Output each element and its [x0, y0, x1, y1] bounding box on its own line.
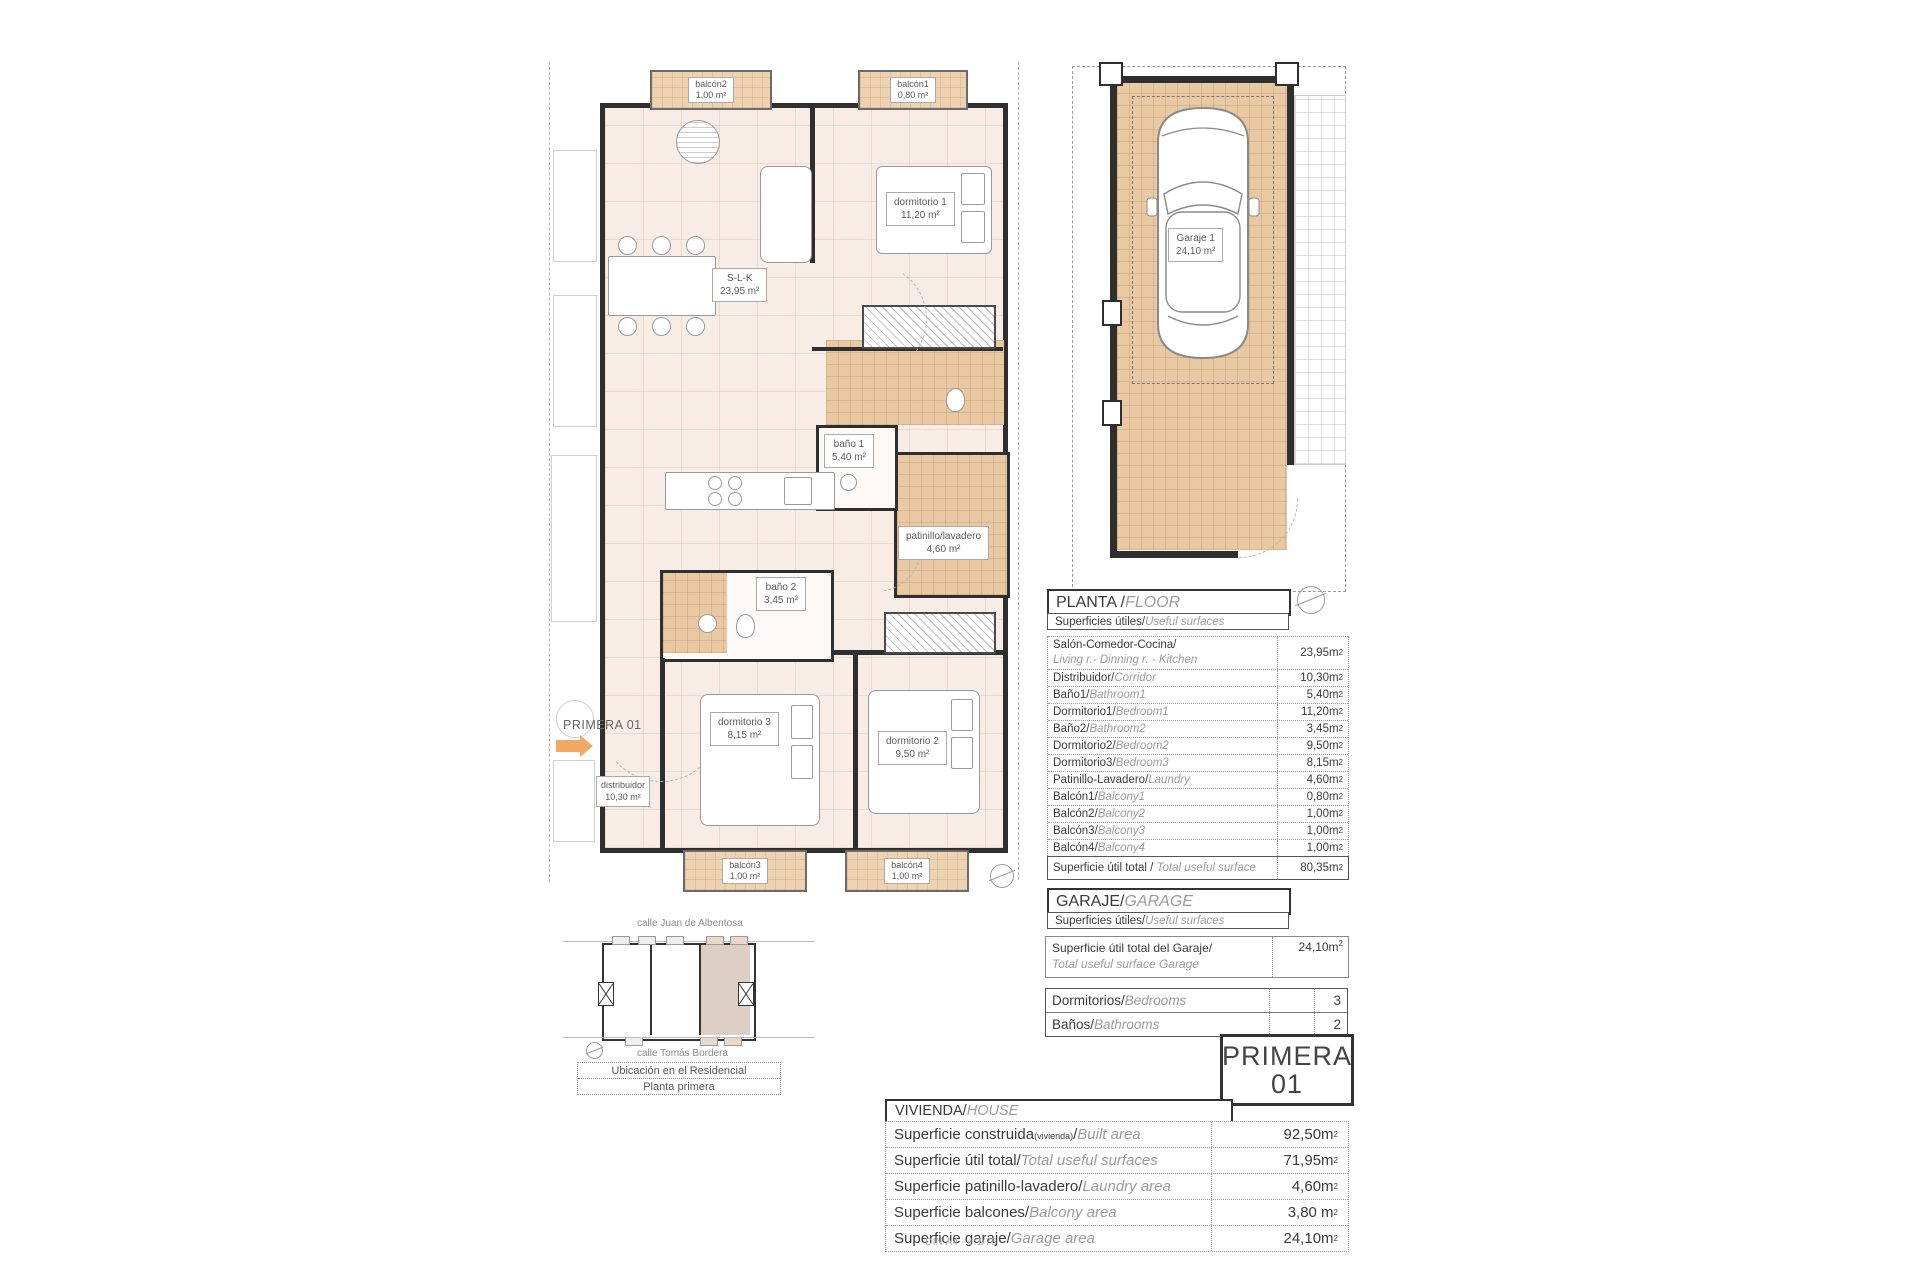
- row-value: 71,95m2: [1211, 1148, 1348, 1173]
- unit-divider: [699, 945, 701, 1035]
- vivienda-row: Superficie construida(vivienda)/Built ar…: [886, 1122, 1348, 1147]
- planta-header: PLANTA / FLOOR: [1047, 589, 1291, 616]
- neighbour-fixture: [553, 150, 597, 262]
- row-label: Superficie útil total / Total useful sur…: [1048, 861, 1277, 875]
- unit-id-line2: 01: [1271, 1070, 1303, 1098]
- balcony-tick: [730, 936, 748, 945]
- pillow: [791, 745, 813, 779]
- room-balcon4: balcón41,00 m²: [845, 850, 969, 892]
- adjacent-structure-grid: [1294, 95, 1346, 465]
- chair: [618, 317, 637, 336]
- site-caption-box: Ubicación en el Residencial Planta prime…: [577, 1062, 781, 1095]
- floorplan-sheet: balcón21,00 m² balcón10,80 m² balcón31,0…: [0, 0, 1920, 1280]
- row-value: 1,00m2: [1277, 806, 1348, 822]
- balcony-tick: [724, 1037, 742, 1046]
- room-balcon2: balcón21,00 m²: [650, 70, 772, 110]
- wardrobe: [884, 612, 996, 654]
- row-label: Baños/Bathrooms: [1046, 1017, 1269, 1032]
- street-line: [563, 941, 815, 942]
- planta-row: Dormitorio1/Bedroom111,20m2: [1048, 703, 1348, 720]
- washbasin: [840, 474, 857, 491]
- room-label-dormitorio3: dormitorio 38,15 m²: [710, 712, 779, 746]
- row-spacer: [1269, 989, 1314, 1012]
- planta-surfaces-table: Salón-Comedor-Cocina/Living r.- Dinning …: [1047, 636, 1349, 880]
- shaft-x-icon: [738, 982, 754, 1006]
- planta-row: Dormitorio2/Bedroom29,50m2: [1048, 737, 1348, 754]
- room-label-balcon2: balcón21,00 m²: [688, 77, 734, 104]
- kitchen-sink: [784, 477, 812, 505]
- vivienda-row: Superficie balcones/Balcony area3,80 m2: [886, 1199, 1348, 1225]
- planta-title-es: PLANTA /: [1056, 594, 1125, 612]
- row-value: 0,80m2: [1277, 789, 1348, 805]
- garaje-title-es: GARAJE/: [1056, 893, 1124, 911]
- row-value: 1,00m2: [1277, 840, 1348, 856]
- row-label: Superficie útil total/Total useful surfa…: [886, 1152, 1211, 1169]
- vivienda-table: Superficie construida(vivienda)/Built ar…: [885, 1121, 1349, 1252]
- north-indicator-icon: [1297, 586, 1325, 614]
- room-patinillo: [894, 452, 1010, 598]
- row-label: Balcón2/Balcony2: [1048, 807, 1277, 821]
- row-value: 9,50m2: [1277, 738, 1348, 754]
- chair: [652, 317, 671, 336]
- row-label: Salón-Comedor-Cocina/Living r.- Dinning …: [1048, 637, 1277, 669]
- row-label: Dormitorio2/Bedroom2: [1048, 739, 1277, 753]
- planta-subtitle-es: Superficies útiles/: [1055, 616, 1145, 628]
- stove-burner: [708, 476, 722, 490]
- scale-note: DIN A4 - e:1/75: [925, 1236, 997, 1248]
- dining-table: [608, 256, 716, 316]
- toilet: [946, 388, 965, 412]
- balcony-tick: [625, 1037, 643, 1046]
- garaje-title-en: GARAGE: [1124, 893, 1192, 911]
- balcony-tick: [612, 936, 630, 945]
- planta-row: Balcón2/Balcony21,00m2: [1048, 805, 1348, 822]
- garaje-header: GARAJE/GARAGE: [1047, 888, 1291, 915]
- planta-row: Salón-Comedor-Cocina/Living r.- Dinning …: [1048, 636, 1348, 669]
- room-label-bano2: baño 23,45 m²: [756, 577, 806, 611]
- row-label: Distribuidor/Corridor: [1048, 671, 1277, 685]
- neighbour-fixture: [553, 295, 597, 427]
- vivienda-row: Superficie útil total/Total useful surfa…: [886, 1147, 1348, 1173]
- planta-title-en: FLOOR: [1125, 594, 1180, 612]
- sofa: [760, 166, 812, 263]
- row-label: Balcón4/Balcony4: [1048, 841, 1277, 855]
- room-label-balcon3: balcón31,00 m²: [722, 858, 768, 885]
- unit-id-line1: PRIMERA: [1222, 1042, 1352, 1070]
- unit-entrance-label: PRIMERA 01: [563, 718, 642, 732]
- room-label-balcon1: balcón10,80 m²: [890, 77, 936, 104]
- entrance-arrow-icon: [556, 740, 580, 752]
- street-line: [563, 1037, 815, 1038]
- row-value: 4,60m2: [1211, 1174, 1348, 1199]
- counts-row: Baños/Bathrooms2: [1046, 1012, 1347, 1036]
- row-value: 4,60m2: [1277, 772, 1348, 788]
- room-label-garaje1: Garaje 124,10 m²: [1168, 228, 1223, 262]
- stove-burner: [728, 492, 742, 506]
- pillow: [961, 211, 985, 243]
- row-value: 23,95m2: [1277, 637, 1348, 669]
- garage-pillar: [1102, 300, 1122, 326]
- row-value: 24,10m2: [1211, 1226, 1348, 1251]
- neighbour-fixture: [553, 760, 595, 842]
- vivienda-header: VIVIENDA/HOUSE: [885, 1099, 1233, 1123]
- round-rug: [676, 120, 720, 164]
- washbasin: [698, 614, 717, 633]
- unit-id-box: PRIMERA 01: [1220, 1034, 1354, 1106]
- tiled-hall: [826, 340, 1004, 425]
- garage-wall: [1110, 551, 1238, 558]
- row-value: 1,00m2: [1277, 823, 1348, 839]
- street-label-bottom: calle Tomás Bordera: [637, 1048, 728, 1059]
- pillow: [791, 705, 813, 739]
- site-caption-line2: Planta primera: [578, 1078, 780, 1094]
- toilet: [736, 614, 755, 638]
- row-value: 3: [1314, 989, 1347, 1012]
- wall: [853, 655, 858, 848]
- row-label: Patinillo-Lavadero/Laundry: [1048, 773, 1277, 787]
- row-label: Baño1/Bathroom1: [1048, 688, 1277, 702]
- chair: [686, 236, 705, 255]
- balcony-tick: [700, 1037, 718, 1046]
- plot-boundary-left: [549, 62, 550, 882]
- site-caption-line1: Ubicación en el Residencial: [578, 1063, 780, 1078]
- planta-row: Distribuidor/Corridor10,30m2: [1048, 669, 1348, 686]
- room-label-dormitorio1: dormitorio 111,20 m²: [886, 192, 955, 226]
- row-label: Dormitorio3/Bedroom3: [1048, 756, 1277, 770]
- pillow: [951, 737, 973, 769]
- garaje-subtitle: Superficies útiles/Useful surfaces: [1047, 912, 1289, 929]
- counts-table: Dormitorios/Bedrooms3Baños/Bathrooms2: [1045, 988, 1348, 1037]
- garage-pillar: [1102, 400, 1122, 426]
- shaft-x-icon: [598, 982, 614, 1006]
- pillow: [951, 699, 973, 731]
- plot-boundary-mid: [1018, 62, 1019, 880]
- planta-row: Balcón4/Balcony41,00m2: [1048, 839, 1348, 856]
- planta-row: Baño1/Bathroom15,40m2: [1048, 686, 1348, 703]
- garaje-total-row: Superficie útil total del Garaje/ Total …: [1045, 936, 1349, 978]
- bano2-tiles: [663, 573, 727, 653]
- row-label: Balcón1/Balcony1: [1048, 790, 1277, 804]
- vivienda-row: Superficie patinillo-lavadero/Laundry ar…: [886, 1173, 1348, 1199]
- planta-row: Baño2/Bathroom23,45m2: [1048, 720, 1348, 737]
- stove-burner: [708, 492, 722, 506]
- garage-pillar: [1275, 62, 1299, 86]
- room-label-bano1: baño 15,40 m²: [824, 434, 874, 468]
- row-label: Dormitorio1/Bedroom1: [1048, 705, 1277, 719]
- planta-subtitle-en: Useful surfaces: [1145, 616, 1224, 628]
- room-label-patinillo: patinillo/lavadero4,60 m²: [898, 526, 989, 560]
- room-label-dormitorio2: dormitorio 29,50 m²: [878, 731, 947, 765]
- row-value: 10,30m2: [1277, 670, 1348, 686]
- row-label: Baño2/Bathroom2: [1048, 722, 1277, 736]
- balcony-tick: [706, 936, 724, 945]
- row-value: 11,20m2: [1277, 704, 1348, 720]
- garaje-subtitle-es: Superficies útiles/: [1055, 915, 1145, 927]
- kitchen-counter: [665, 472, 835, 510]
- chair: [652, 236, 671, 255]
- row-value: 5,40m2: [1277, 687, 1348, 703]
- planta-row: Balcón3/Balcony31,00m2: [1048, 822, 1348, 839]
- row-value: 8,15m2: [1277, 755, 1348, 771]
- planta-row: Patinillo-Lavadero/Laundry4,60m2: [1048, 771, 1348, 788]
- garaje-subtitle-en: Useful surfaces: [1145, 915, 1224, 927]
- row-label: Dormitorios/Bedrooms: [1046, 993, 1269, 1008]
- row-value: 3,80 m2: [1211, 1200, 1348, 1225]
- pillow: [961, 173, 985, 205]
- room-label-distribuidor: distribuidor10,30 m²: [596, 776, 650, 807]
- residencial-block: [602, 943, 756, 1041]
- north-indicator-icon: [586, 1042, 603, 1059]
- garage-pillar: [1099, 62, 1123, 86]
- row-value: 92,50m2: [1211, 1122, 1348, 1147]
- balcony-tick: [638, 936, 656, 945]
- north-indicator-icon: [990, 864, 1014, 888]
- vivienda-title-en: HOUSE: [967, 1103, 1019, 1119]
- row-value: 80,35m2: [1277, 857, 1348, 879]
- row-label: Superficie patinillo-lavadero/Laundry ar…: [886, 1178, 1211, 1195]
- room-label-slk: S-L-K23,95 m²: [712, 268, 767, 302]
- counts-row: Dormitorios/Bedrooms3: [1046, 989, 1347, 1012]
- stove-burner: [728, 476, 742, 490]
- row-label: Superficie construida(vivienda)/Built ar…: [886, 1126, 1211, 1143]
- balcony-tick: [666, 936, 684, 945]
- garage-wall: [1110, 76, 1294, 83]
- row-value: 3,45m2: [1277, 721, 1348, 737]
- chair: [686, 317, 705, 336]
- garaje-total-value: 24,10m2: [1272, 937, 1348, 977]
- room-label-balcon4: balcón41,00 m²: [884, 858, 930, 885]
- row-label: Balcón3/Balcony3: [1048, 824, 1277, 838]
- chair: [618, 236, 637, 255]
- garage-wall: [1287, 80, 1294, 465]
- street-label-top: calle Juan de Albentosa: [637, 918, 743, 929]
- room-balcon3: balcón31,00 m²: [683, 850, 807, 892]
- garaje-total-label: Superficie útil total del Garaje/ Total …: [1046, 937, 1272, 977]
- vivienda-title-es: VIVIENDA/: [895, 1103, 967, 1119]
- unit-divider: [650, 945, 652, 1035]
- planta-total-row: Superficie útil total / Total useful sur…: [1047, 856, 1349, 880]
- planta-row: Dormitorio3/Bedroom38,15m2: [1048, 754, 1348, 771]
- room-balcon1: balcón10,80 m²: [858, 70, 968, 110]
- neighbour-fixture: [551, 455, 597, 622]
- planta-subtitle: Superficies útiles/Useful surfaces: [1047, 613, 1289, 630]
- row-label: Superficie balcones/Balcony area: [886, 1204, 1211, 1221]
- row-value: 2: [1314, 1013, 1347, 1036]
- row-spacer: [1269, 1013, 1314, 1036]
- planta-row: Balcón1/Balcony10,80m2: [1048, 788, 1348, 805]
